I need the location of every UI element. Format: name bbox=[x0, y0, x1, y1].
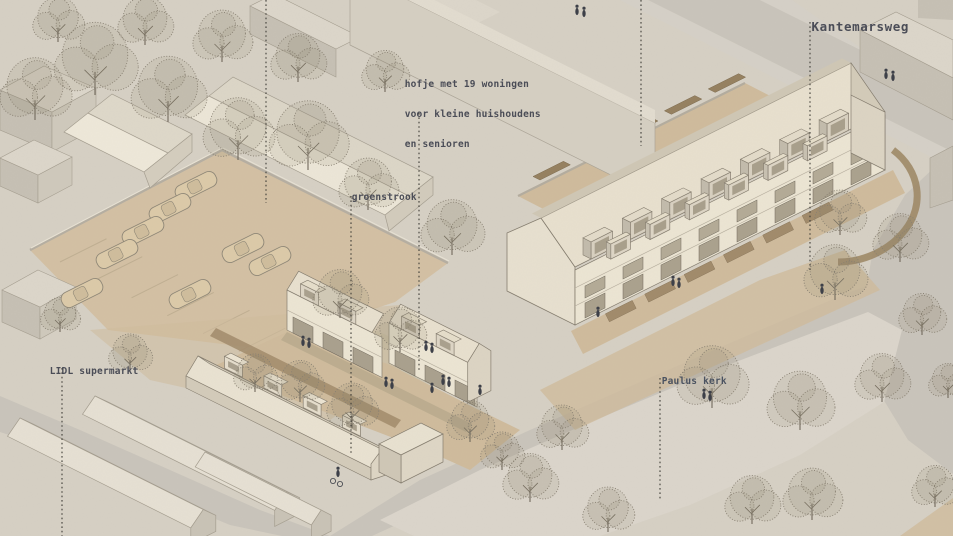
annotation-groenstrook-text: groenstrook bbox=[352, 192, 417, 203]
annotation-hofje-line1: hofje met 19 woningen bbox=[405, 79, 529, 90]
site-plan-illustration: hofje met 19 woningen voor kleine huisho… bbox=[0, 0, 953, 536]
annotation-hofje: hofje met 19 woningen voor kleine huisho… bbox=[381, 62, 541, 167]
annotation-lidl: LIDL supermarkt bbox=[26, 349, 138, 394]
annotation-kantemarsweg-text: Kantemarsweg bbox=[812, 19, 910, 34]
annotation-hofje-line2: voor kleine huishoudens bbox=[405, 109, 541, 120]
annotation-kantemarsweg: Kantemarsweg bbox=[779, 4, 909, 49]
annotation-lidl-text: LIDL supermarkt bbox=[50, 366, 139, 377]
annotation-hofje-line3: en senioren bbox=[405, 139, 470, 150]
annotation-paulus-text: Paulus kerk bbox=[662, 376, 727, 387]
annotation-groenstrook: groenstrook bbox=[328, 175, 417, 220]
annotation-paulus: Paulus kerk bbox=[638, 359, 727, 404]
